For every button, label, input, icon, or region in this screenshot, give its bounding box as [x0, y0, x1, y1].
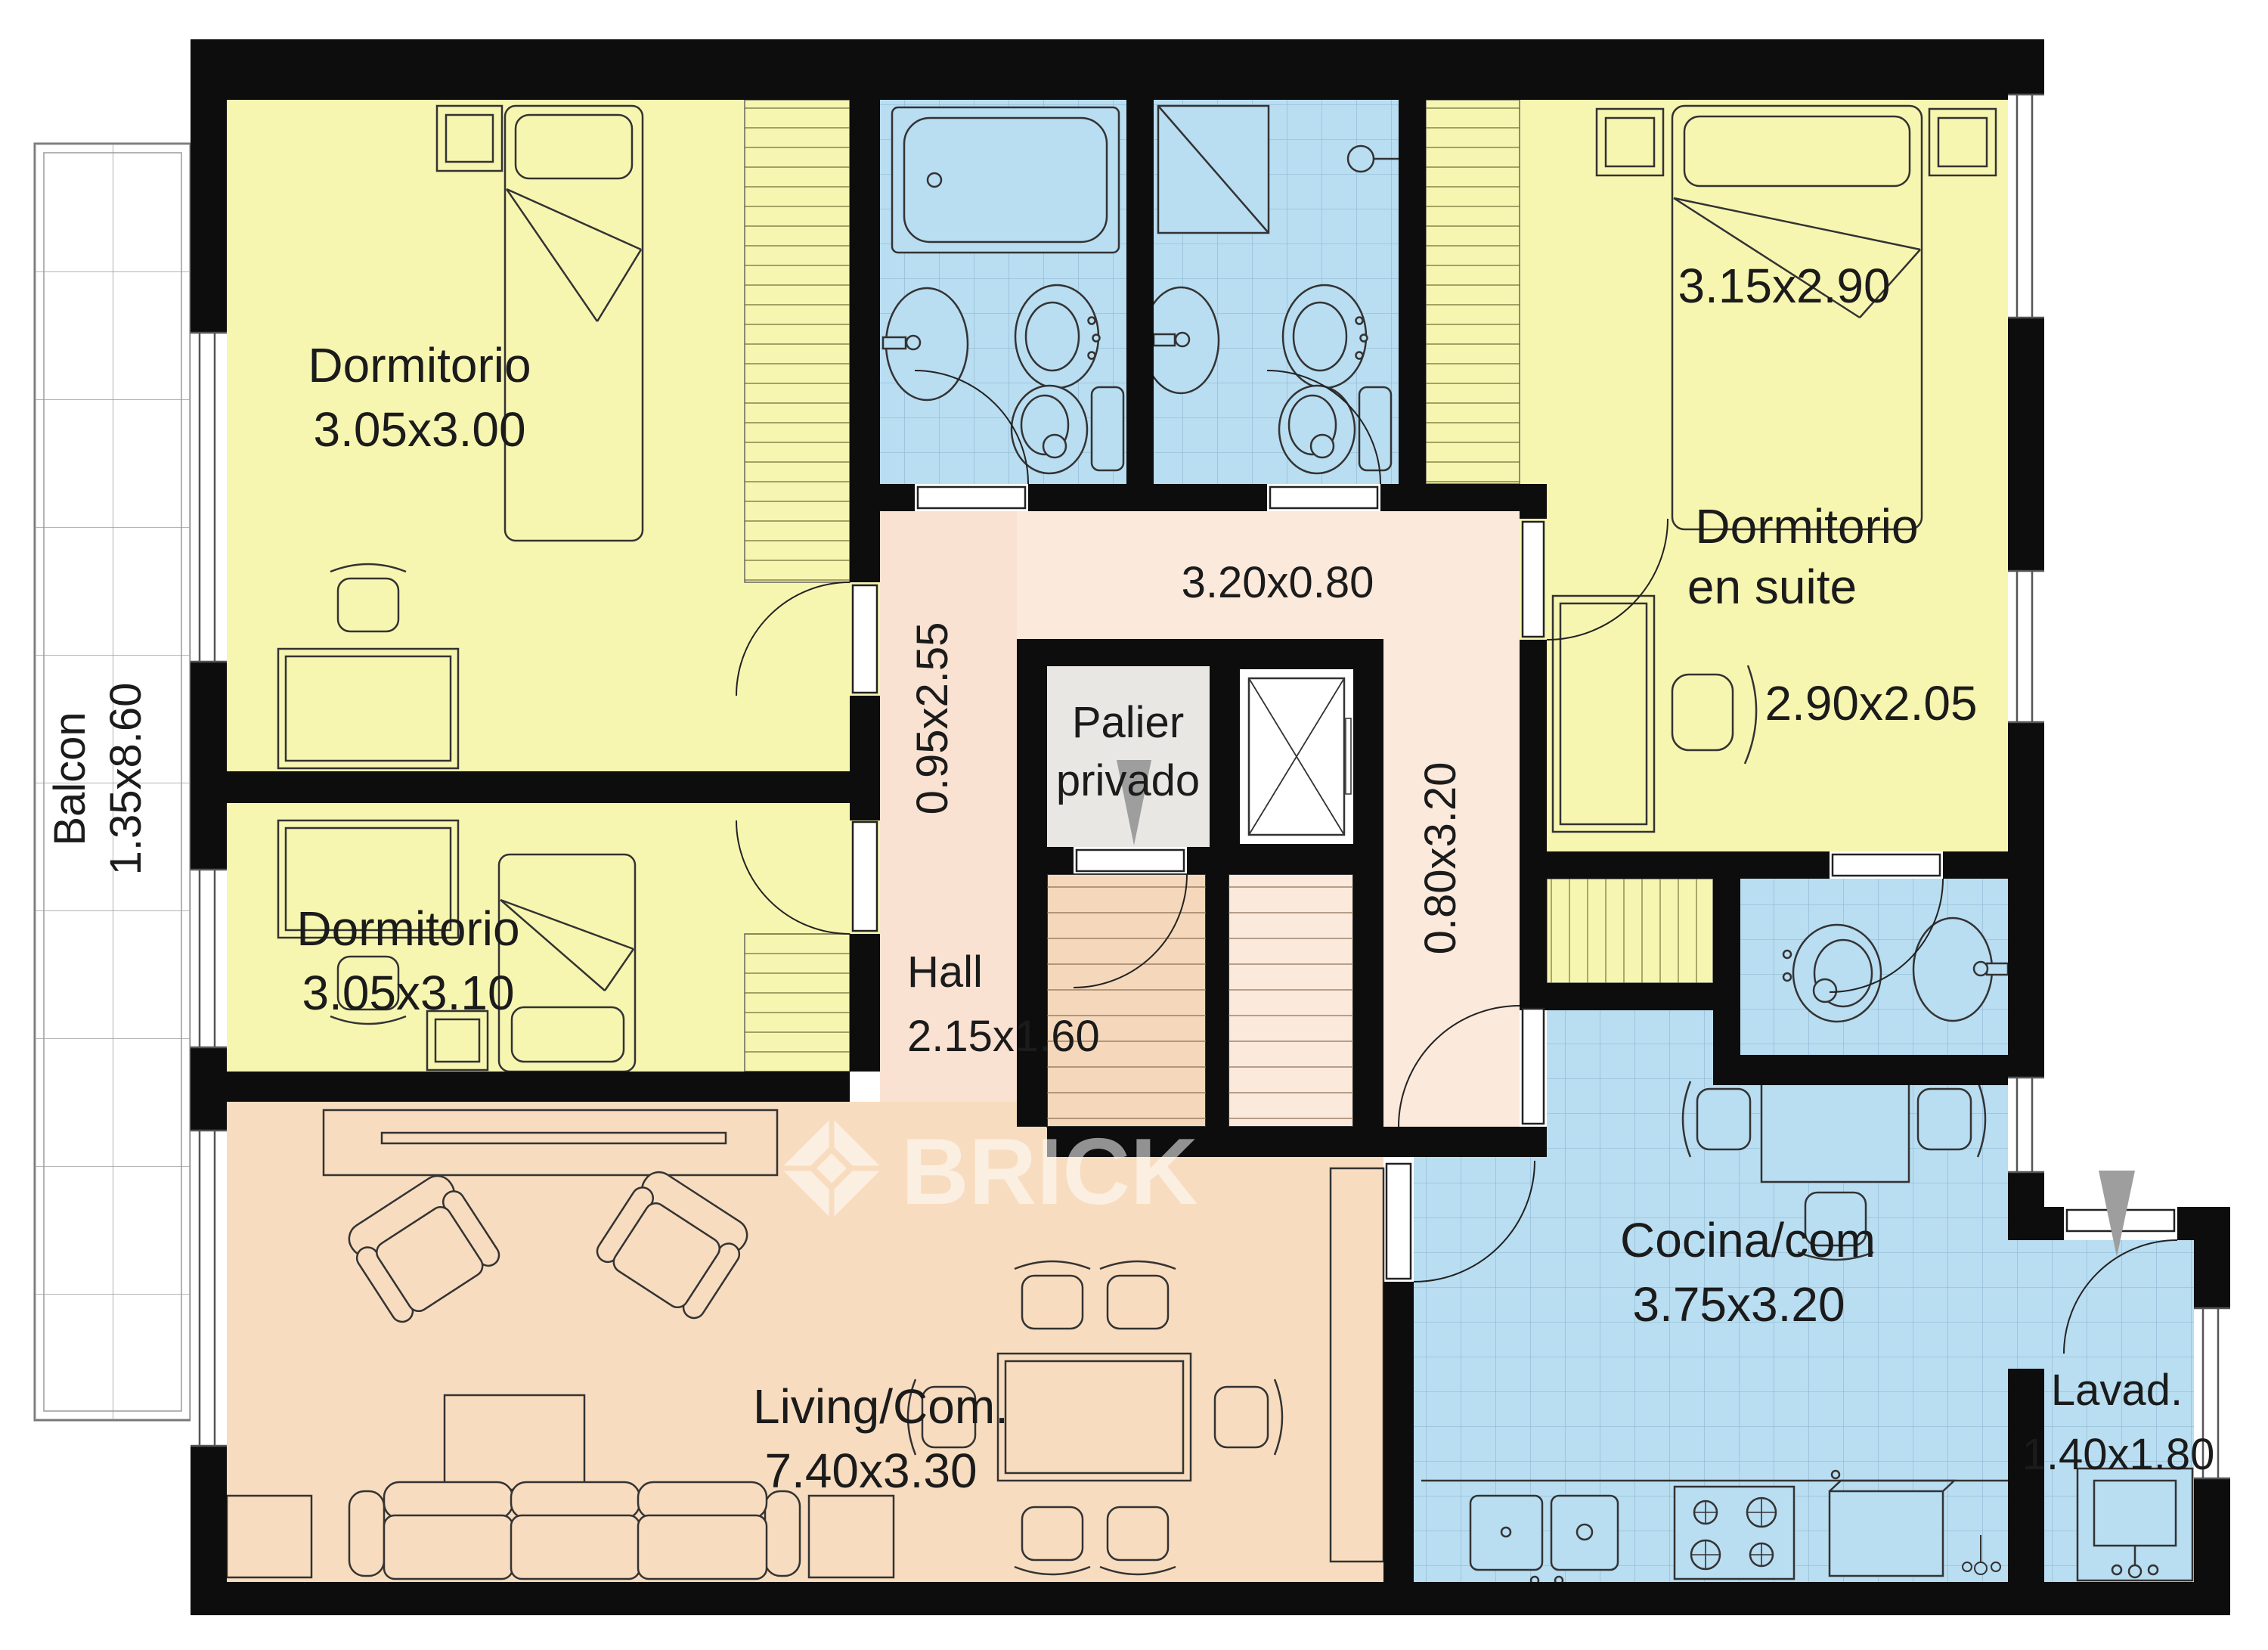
closet-suite-bottom [1547, 879, 1713, 983]
bedroom1-dims: 3.05x3.00 [313, 402, 525, 457]
floorplan-canvas: Balcon 1.35x8.60 [0, 0, 2268, 1650]
sofa [349, 1482, 800, 1579]
living-name: Living/Com. [753, 1379, 1009, 1434]
faucet [883, 337, 906, 349]
side-table [227, 1496, 311, 1577]
side-table [809, 1496, 894, 1577]
bedroom1-name: Dormitorio [308, 338, 531, 392]
hall-dims: 2.15x1.60 [907, 1012, 1100, 1061]
palier-name-2: privado [1056, 756, 1200, 805]
stairs [1047, 874, 1353, 1127]
bedroom-corridor-dims: 0.95x2.55 [908, 622, 957, 815]
hall-name: Hall [907, 948, 983, 997]
tall-cabinet [1331, 1168, 1383, 1562]
furniture-laundry [2077, 1469, 2192, 1580]
suite-name-1: Dormitorio [1695, 499, 1918, 554]
coffee-table [445, 1395, 584, 1490]
toilet-cistern [1092, 387, 1123, 470]
kitchen-name: Cocina/com [1620, 1213, 1876, 1267]
living-dims: 7.40x3.30 [764, 1444, 977, 1498]
toilet-cistern [1359, 387, 1391, 470]
laundry-dims: 1.40x1.80 [2022, 1430, 2215, 1479]
bath-corridor-dims: 3.20x0.80 [1182, 558, 1374, 607]
closet-suite-top [1426, 100, 1520, 484]
kitchen-dims: 3.75x3.20 [1632, 1277, 1845, 1332]
closet-bedroom2 [745, 934, 850, 1072]
bedroom2-dims: 3.05x3.10 [302, 966, 514, 1020]
closet-bedroom1 [745, 100, 850, 582]
kitchen-corridor-dims: 0.80x3.20 [1416, 762, 1465, 955]
elevator-rail [1346, 718, 1351, 794]
shower-head [1348, 146, 1374, 172]
tub-drain [928, 173, 941, 187]
bedroom2-name: Dormitorio [296, 901, 519, 956]
balcony-name: Balcon [45, 712, 94, 845]
faucet [1154, 334, 1175, 346]
palier-name-1: Palier [1072, 698, 1184, 747]
stove [1675, 1487, 1794, 1579]
suite-name-2: en suite [1687, 560, 1857, 614]
chair-seat [1672, 675, 1733, 750]
floorplan-svg: Balcon 1.35x8.60 [0, 0, 2268, 1650]
balcony: Balcon 1.35x8.60 [35, 144, 191, 1420]
suite-bed-dims: 3.15x2.90 [1678, 259, 1890, 313]
watermark-text: BRICK [901, 1120, 1198, 1224]
suite-desk-dims: 2.90x2.05 [1765, 676, 1977, 730]
laundry-name: Lavad. [2051, 1366, 2183, 1415]
faucet [1987, 963, 2008, 975]
balcony-dims: 1.35x8.60 [101, 683, 150, 876]
elevator [1240, 669, 1353, 844]
